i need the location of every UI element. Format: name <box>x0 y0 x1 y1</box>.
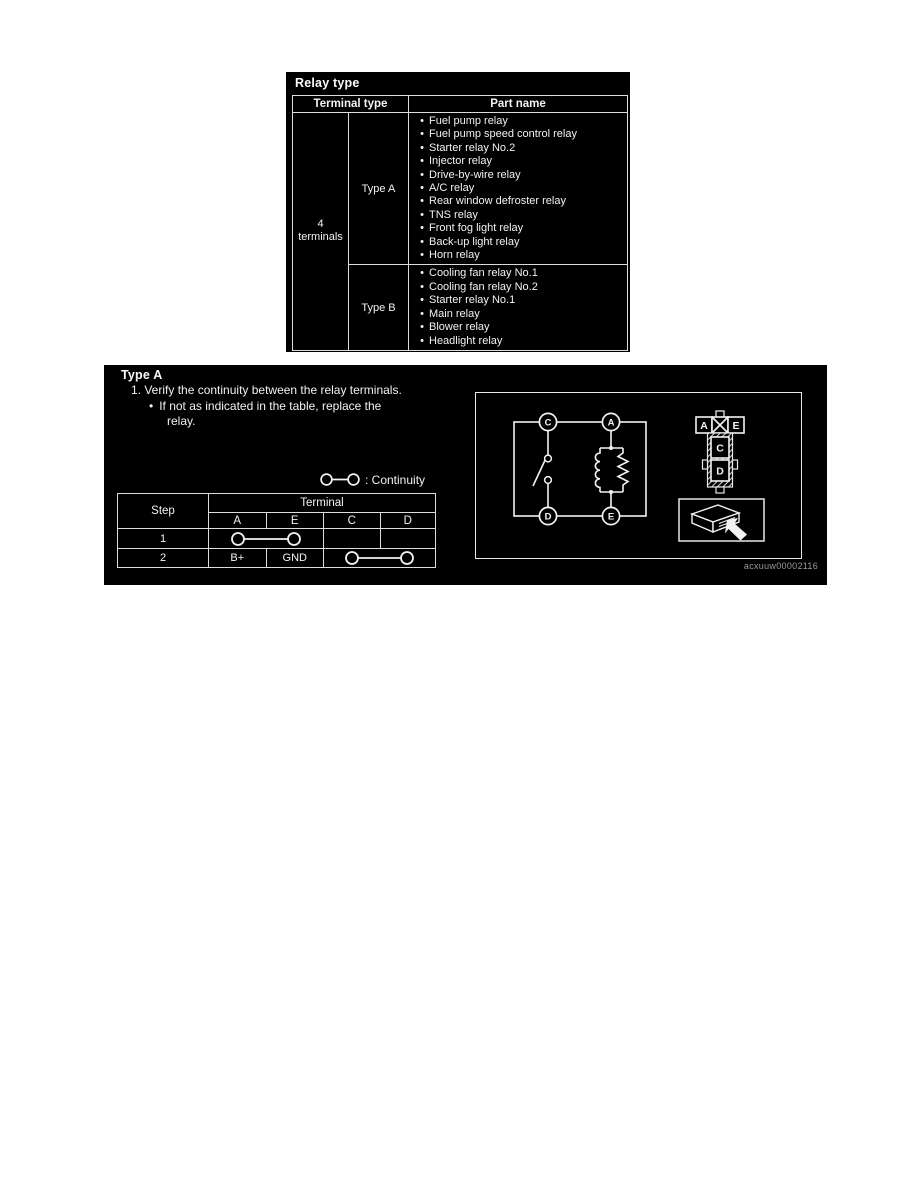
terminal-e-label: E <box>608 512 614 523</box>
empty-cell <box>380 529 436 549</box>
terminal-type-header: Terminal type <box>293 96 409 113</box>
continuity-legend: : Continuity <box>319 472 425 487</box>
type-a-procedure-panel: Type A 1. Verify the continuity between … <box>104 365 827 585</box>
part-name-item: Front fog light relay <box>415 222 627 235</box>
part-name-item: Fuel pump speed control relay <box>415 128 627 141</box>
circuit-wires <box>514 422 646 516</box>
continuity-step-table: Step Terminal A E C D 1 2 B+ GND <box>117 493 436 568</box>
terminal-col-a: A <box>209 513 267 529</box>
continuity-legend-label: : Continuity <box>365 473 425 487</box>
part-name-item: Injector relay <box>415 155 627 168</box>
step-2-cell: 2 <box>118 549 209 568</box>
type-a-parts-cell: Fuel pump relayFuel pump speed control r… <box>409 113 628 265</box>
part-name-item: Main relay <box>415 308 627 321</box>
relay-type-table: Terminal type Part name 4 terminals Type… <box>292 95 628 351</box>
terminal-col-e: E <box>266 513 324 529</box>
step-1-cell: 1 <box>118 529 209 549</box>
type-b-parts-list: Cooling fan relay No.1Cooling fan relay … <box>415 267 627 347</box>
part-name-item: Cooling fan relay No.1 <box>415 267 627 280</box>
part-name-item: A/C relay <box>415 182 627 195</box>
continuity-a-e-icon <box>209 530 323 548</box>
switch-contact-bottom <box>545 477 552 484</box>
replace-note-line1: If not as indicated in the table, replac… <box>149 399 381 413</box>
connector-pin-a-label: A <box>700 420 708 432</box>
relay-circuit-diagram: C A D E A E C <box>476 393 800 557</box>
terminal-count-number: 4 <box>293 218 348 231</box>
type-a-label: Type A <box>349 113 409 265</box>
terminal-d-label: D <box>545 512 552 523</box>
table-row: 1 <box>118 529 436 549</box>
connector-pin-c-label: C <box>716 443 724 455</box>
connector-pin-e-label: E <box>732 420 739 432</box>
type-b-parts-cell: Cooling fan relay No.1Cooling fan relay … <box>409 265 628 350</box>
continuity-symbol-icon <box>319 472 361 487</box>
relay-location-inset <box>679 499 764 541</box>
continuity-c-d-cell <box>324 549 436 568</box>
part-name-item: Starter relay No.2 <box>415 142 627 155</box>
terminal-a-label: A <box>608 418 615 429</box>
terminal-count-word: terminals <box>293 231 348 244</box>
type-a-title: Type A <box>121 368 162 382</box>
table-row: 4 terminals Type A Fuel pump relayFuel p… <box>293 113 628 265</box>
part-name-header: Part name <box>409 96 628 113</box>
part-name-item: Cooling fan relay No.2 <box>415 281 627 294</box>
part-name-item: Drive-by-wire relay <box>415 169 627 182</box>
switch-contact-top <box>545 455 552 462</box>
figure-id: acxuuw00002116 <box>744 561 818 571</box>
terminal-col-d: D <box>380 513 436 529</box>
terminal-col-c: C <box>324 513 381 529</box>
part-name-item: Fuel pump relay <box>415 115 627 128</box>
empty-cell <box>324 529 381 549</box>
connector-pin-d-label: D <box>716 466 724 478</box>
part-name-item: Rear window defroster relay <box>415 195 627 208</box>
part-name-item: Horn relay <box>415 249 627 262</box>
b-plus-cell: B+ <box>209 549 267 568</box>
part-name-item: TNS relay <box>415 209 627 222</box>
type-b-label: Type B <box>349 265 409 350</box>
terminal-c-label: C <box>545 418 552 429</box>
part-name-item: Starter relay No.1 <box>415 294 627 307</box>
relay-type-title: Relay type <box>295 76 360 90</box>
type-a-parts-list: Fuel pump relayFuel pump speed control r… <box>415 115 627 262</box>
circuit-terminal-circles: C A D E <box>539 413 619 524</box>
connector-pin-layout: A E C D <box>696 411 744 493</box>
terminal-count-cell: 4 terminals <box>293 113 349 351</box>
relay-diagram-box: C A D E A E C <box>475 392 802 559</box>
table-row: 2 B+ GND <box>118 549 436 568</box>
part-name-item: Blower relay <box>415 321 627 334</box>
continuity-c-d-icon <box>324 549 435 567</box>
junction-dot <box>609 490 613 494</box>
terminal-header: Terminal <box>209 494 436 513</box>
part-name-item: Back-up light relay <box>415 236 627 249</box>
continuity-a-e-cell <box>209 529 324 549</box>
junction-dot <box>609 446 613 450</box>
replace-note-line2: relay. <box>167 414 195 428</box>
relay-type-panel: Relay type Terminal type Part name 4 ter… <box>286 72 630 352</box>
gnd-cell: GND <box>266 549 324 568</box>
verify-instruction: 1. Verify the continuity between the rel… <box>131 383 402 397</box>
part-name-item: Headlight relay <box>415 335 627 348</box>
step-header: Step <box>118 494 209 529</box>
